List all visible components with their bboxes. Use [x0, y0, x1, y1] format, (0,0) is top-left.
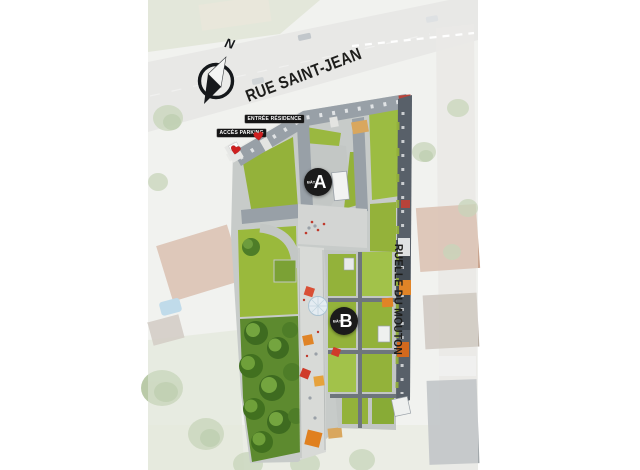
parasol — [313, 375, 324, 386]
green-roof — [369, 105, 400, 200]
building-prefix: BÂT. — [333, 319, 342, 324]
building-prefix: BÂT. — [307, 180, 316, 185]
lawn-square — [274, 260, 296, 282]
access-marker-icon — [229, 144, 242, 157]
entrance-gap — [329, 116, 339, 127]
building-marker-a[interactable]: BÂT. A — [304, 168, 332, 196]
site-plan-image: N RUE SAINT-JEAN RUELLE DU MOUTON ACCÈS … — [0, 0, 640, 470]
white-building — [392, 397, 411, 417]
canopy — [309, 297, 328, 316]
left-garden — [238, 226, 298, 317]
masterplan — [224, 94, 412, 463]
parasol — [302, 334, 314, 346]
shed — [344, 258, 354, 270]
pavilion — [332, 171, 350, 200]
shed — [378, 326, 390, 342]
building-marker-b[interactable]: BÂT. B — [330, 307, 358, 335]
terrace-paving — [298, 204, 367, 248]
entrance-residence-label: ENTRÉE RÉSIDENCE — [245, 115, 304, 123]
street-label-ruelle-du-mouton: RUELLE DU MOUTON — [391, 244, 404, 355]
access-marker-icon — [252, 130, 264, 142]
pergola — [328, 427, 343, 438]
red-roof-element — [401, 200, 410, 208]
